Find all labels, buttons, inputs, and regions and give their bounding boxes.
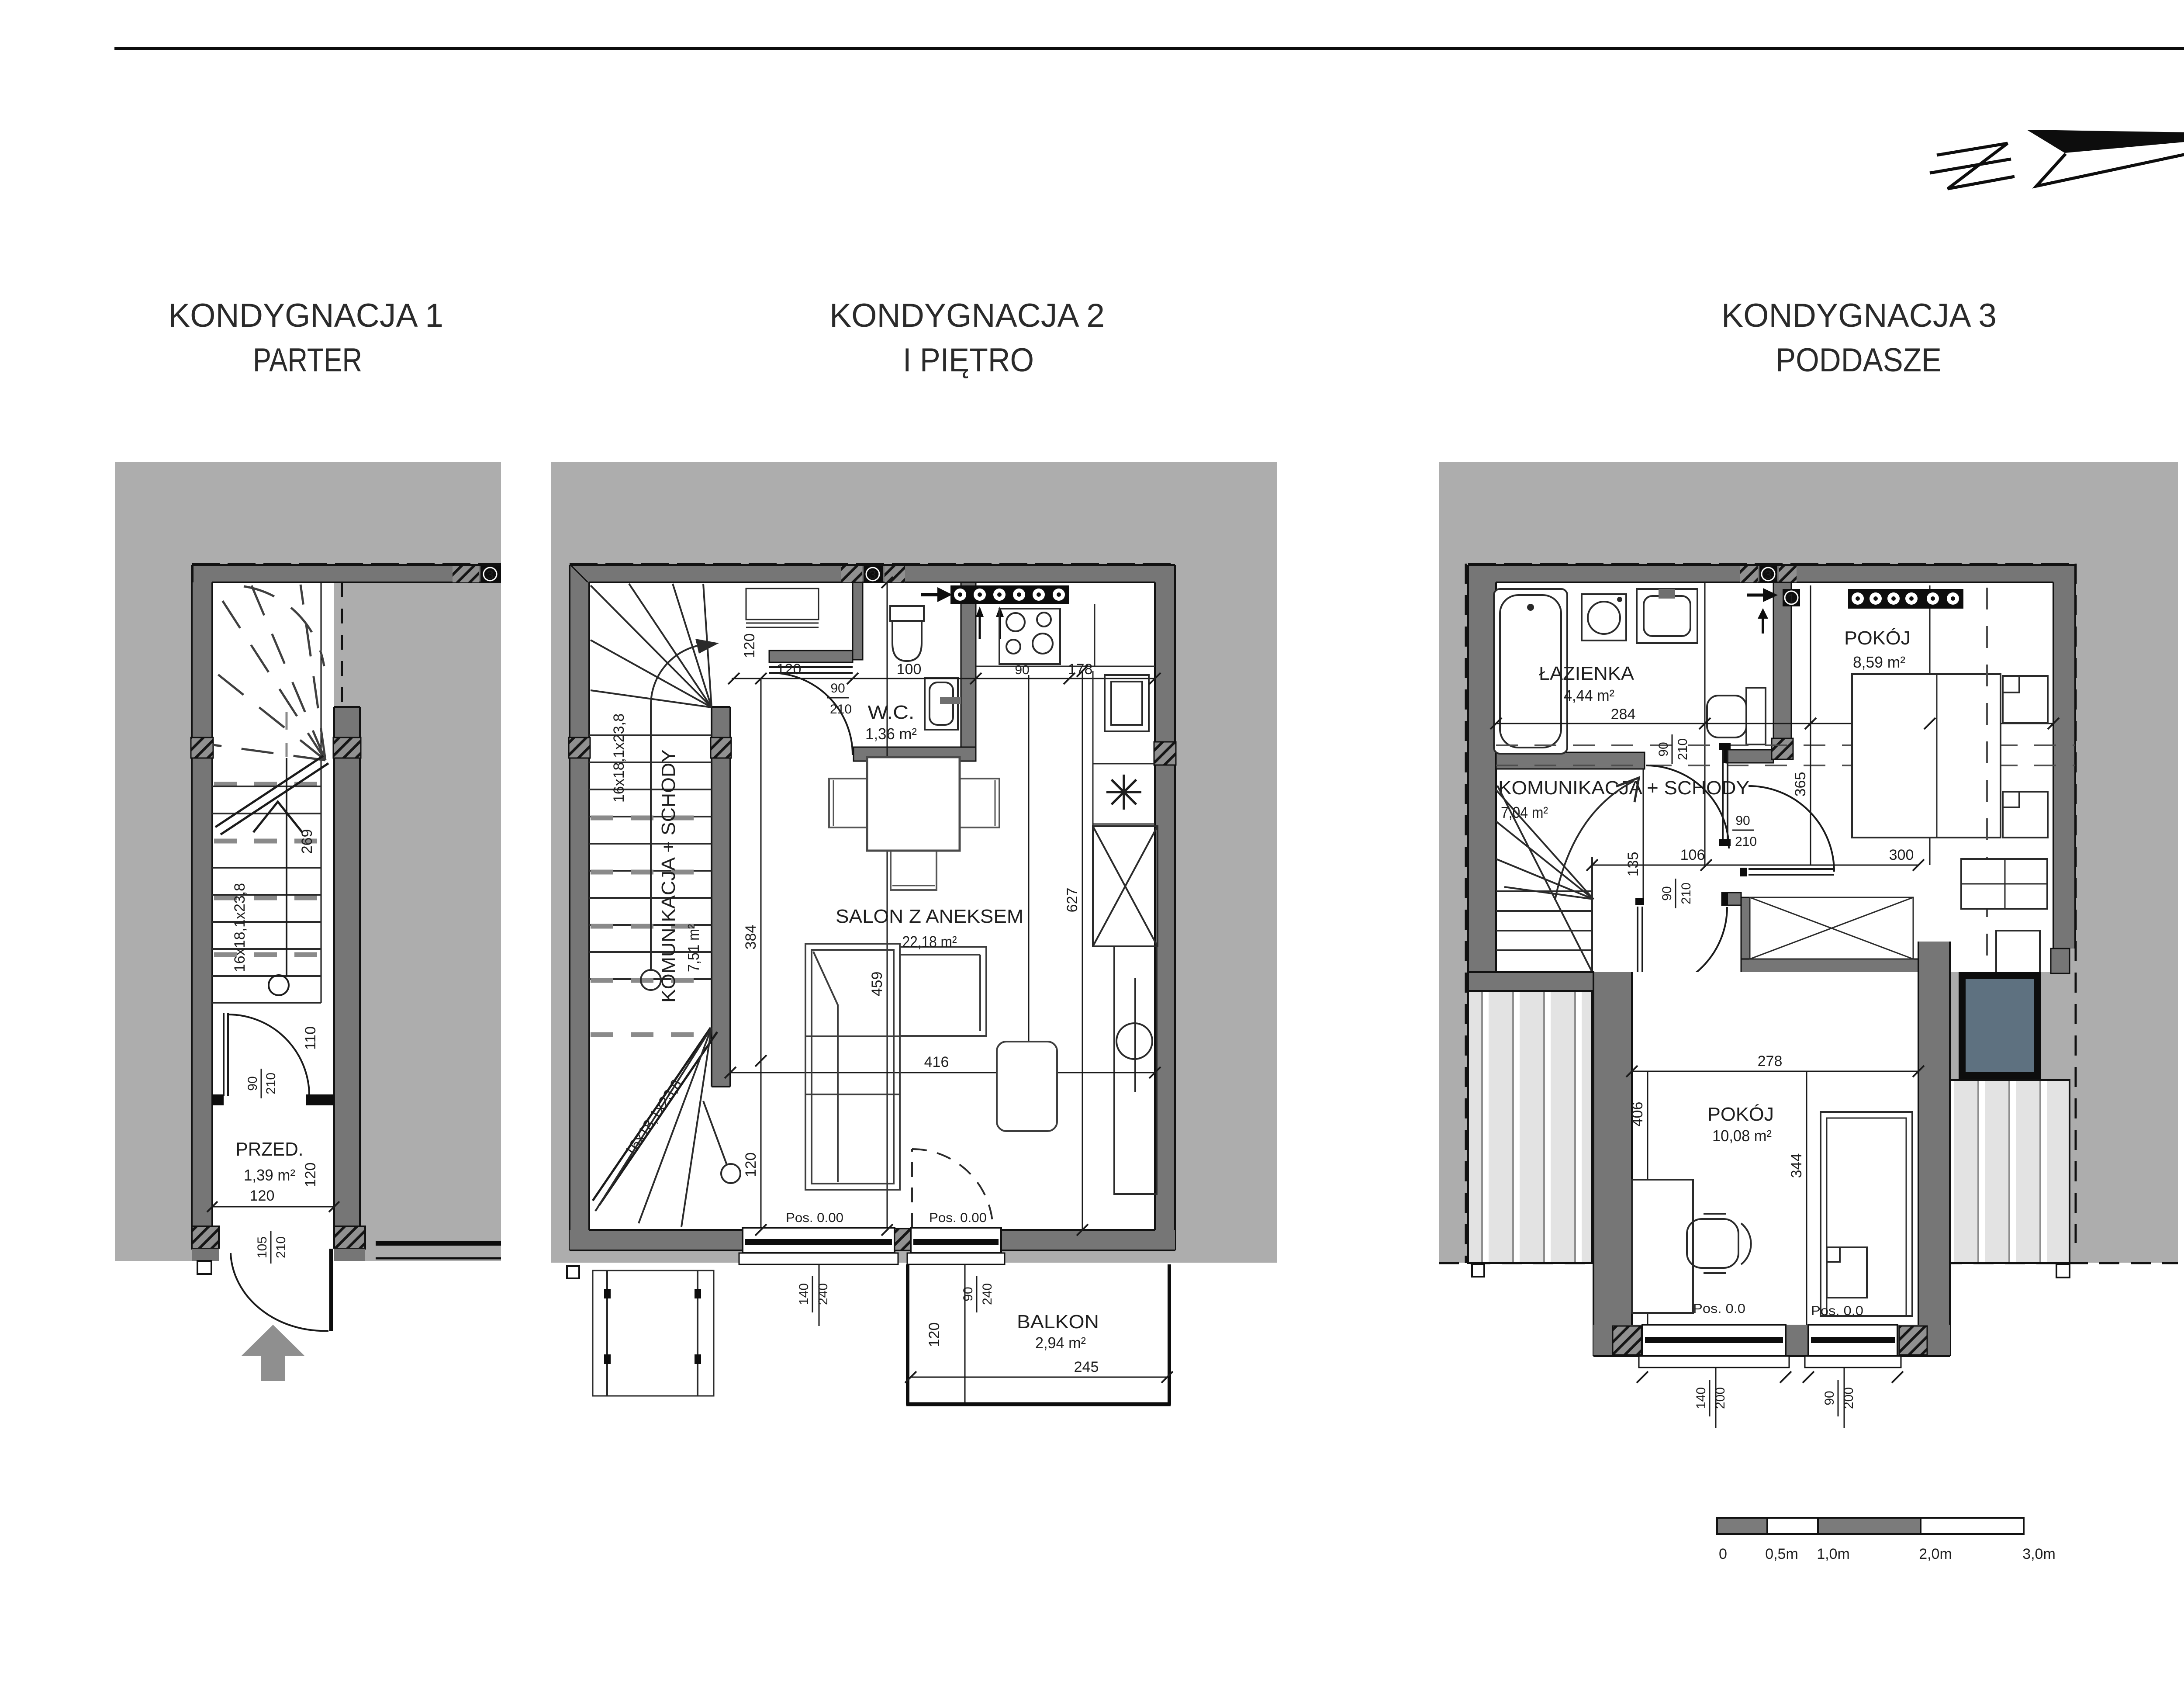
svg-text:3: 3 [487,568,494,582]
svg-text:269: 269 [299,829,315,854]
svg-text:120: 120 [302,1163,319,1188]
svg-text:300: 300 [1889,847,1914,863]
svg-text:SALON Z ANEKSEM: SALON Z ANEKSEM [836,906,1023,927]
svg-text:2,0m: 2,0m [1919,1546,1952,1562]
svg-text:1,36 m²: 1,36 m² [865,725,917,743]
svg-text:8,59 m²: 8,59 m² [1853,653,1905,671]
svg-text:PRZED.: PRZED. [236,1139,304,1160]
svg-text:BALKON: BALKON [1017,1311,1099,1333]
svg-text:140: 140 [1694,1387,1708,1409]
svg-text:210: 210 [1679,883,1693,904]
svg-text:90: 90 [1735,814,1750,828]
svg-text:KONDYGNACJA 2: KONDYGNACJA 2 [829,297,1105,334]
svg-text:120: 120 [926,1323,943,1347]
svg-text:16x18,1x23,8: 16x18,1x23,8 [232,883,248,972]
svg-text:16x18,1x23,8: 16x18,1x23,8 [611,713,627,803]
svg-text:240: 240 [816,1283,830,1305]
svg-text:210: 210 [1735,834,1757,849]
svg-text:Pos. 0.0: Pos. 0.0 [1811,1304,1863,1318]
svg-text:120: 120 [741,634,758,658]
svg-text:120: 120 [743,1153,759,1177]
svg-text:416: 416 [924,1054,949,1070]
svg-text:1,39 m²: 1,39 m² [244,1166,295,1184]
svg-text:210: 210 [264,1073,278,1094]
svg-text:KONDYGNACJA 1: KONDYGNACJA 1 [168,297,443,334]
svg-text:120: 120 [777,661,802,678]
svg-text:210: 210 [274,1236,288,1258]
svg-text:90: 90 [961,1287,975,1301]
svg-text:90: 90 [1660,886,1674,900]
svg-text:90: 90 [830,681,845,696]
svg-text:210: 210 [1676,738,1690,760]
svg-text:135: 135 [1625,852,1641,877]
svg-text:284: 284 [1611,706,1636,723]
svg-text:384: 384 [743,925,759,950]
svg-text:0,5m: 0,5m [1765,1546,1798,1562]
svg-text:22,18 m²: 22,18 m² [902,933,957,951]
svg-text:Pos. 0.0: Pos. 0.0 [1693,1302,1745,1316]
svg-text:90: 90 [1015,663,1029,677]
svg-text:1,0m: 1,0m [1817,1546,1850,1562]
svg-text:4,44 m²: 4,44 m² [1564,686,1614,704]
svg-text:106: 106 [1680,847,1705,863]
svg-text:POKÓJ: POKÓJ [1707,1104,1774,1125]
svg-text:140: 140 [797,1283,811,1305]
svg-text:105: 105 [255,1236,270,1258]
svg-text:PODDASZE: PODDASZE [1776,342,1942,379]
svg-text:210: 210 [830,702,852,717]
svg-text:344: 344 [1788,1153,1805,1178]
svg-text:ŁAZIENKA: ŁAZIENKA [1539,663,1635,684]
svg-text:627: 627 [1064,888,1081,913]
svg-text:245: 245 [1074,1359,1099,1375]
svg-text:200: 200 [1842,1387,1856,1409]
svg-text:POKÓJ: POKÓJ [1844,627,1911,649]
svg-text:PARTER: PARTER [253,342,362,379]
svg-text:100: 100 [897,661,922,678]
svg-text:0: 0 [1719,1546,1727,1562]
svg-text:Pos. 0.00: Pos. 0.00 [786,1211,843,1225]
svg-text:459: 459 [869,972,885,997]
svg-text:KOMUNIKACJA + SCHODY: KOMUNIKACJA + SCHODY [658,749,679,1003]
svg-text:240: 240 [980,1283,995,1305]
svg-text:3: 3 [869,568,876,582]
svg-text:90: 90 [1822,1391,1837,1405]
svg-text:110: 110 [302,1026,319,1050]
svg-text:90: 90 [245,1076,260,1091]
svg-text:1: 1 [1788,592,1795,605]
svg-text:I PIĘTRO: I PIĘTRO [903,342,1034,379]
svg-text:✳: ✳ [1104,766,1144,820]
svg-text:3,0m: 3,0m [2022,1546,2056,1562]
svg-text:KONDYGNACJA 3: KONDYGNACJA 3 [1721,297,1997,334]
svg-text:90: 90 [1656,742,1671,756]
svg-text:406: 406 [1629,1102,1646,1127]
svg-text:W.C.: W.C. [868,702,915,723]
svg-text:3: 3 [1765,568,1772,582]
svg-text:278: 278 [1758,1053,1783,1070]
svg-text:365: 365 [1792,772,1809,797]
svg-text:2,94 m²: 2,94 m² [1035,1334,1086,1352]
svg-text:Pos. 0.00: Pos. 0.00 [929,1211,987,1225]
svg-text:7,51 m²: 7,51 m² [684,924,702,972]
svg-text:KOMUNIKACJA + SCHODY: KOMUNIKACJA + SCHODY [1498,777,1749,799]
svg-text:120: 120 [250,1188,275,1204]
svg-text:200: 200 [1713,1387,1728,1409]
svg-text:10,08 m²: 10,08 m² [1712,1127,1772,1145]
